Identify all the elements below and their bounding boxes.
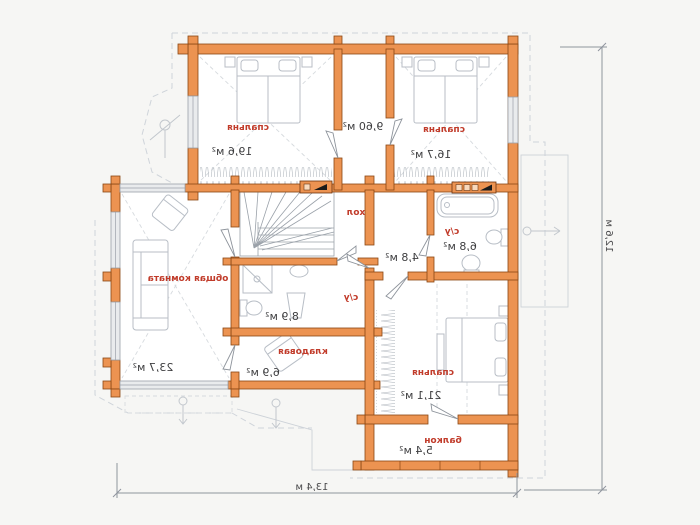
vent-panel-icon xyxy=(452,182,496,193)
room-label-hall: хол xyxy=(347,208,366,218)
drain-symbol-icon xyxy=(523,227,531,235)
room-area-corridor: 9,60 м² xyxy=(343,120,384,133)
room-area-storage: 6,9 м² xyxy=(246,366,280,379)
drain-symbol-icon xyxy=(179,397,187,405)
room-area-balcony: 5,4 м² xyxy=(399,444,433,457)
room-label-bedroom1: спальня xyxy=(227,123,269,133)
room-label-bath1: с/у xyxy=(445,227,460,237)
bed-double xyxy=(402,57,489,123)
washbasin xyxy=(290,265,308,277)
room-area-bedroom1: 19,6 м² xyxy=(212,145,253,158)
room-area-bedroom2: 16,7 м² xyxy=(411,148,452,161)
window xyxy=(120,184,185,192)
window xyxy=(111,212,120,268)
bathtub xyxy=(437,194,498,217)
dimension-right: 12,6 м xyxy=(603,220,614,253)
room-label-bedroom2: спальня xyxy=(423,125,465,135)
vent-panel-icon xyxy=(300,181,332,193)
room-label-bedroom3: спальня xyxy=(412,368,454,378)
drain-symbol-icon xyxy=(272,399,280,407)
window xyxy=(188,96,198,148)
floor-plan-canvas: спальня 19,6 м² 9,60 м² спальня 16,7 м² … xyxy=(0,0,700,525)
dimension-bottom: 13,4 м xyxy=(296,482,329,493)
bed-double xyxy=(437,306,509,395)
room-area-bath1: 6,8 м² xyxy=(443,240,477,253)
toilet xyxy=(240,300,262,316)
room-label-storage: кладовая xyxy=(278,347,328,357)
room-label-bath2: с/у xyxy=(344,293,359,303)
window xyxy=(111,302,120,360)
room-area-vestibule: 4,8 м² xyxy=(385,251,419,264)
window xyxy=(120,381,228,389)
window xyxy=(508,97,518,143)
floor-plan-drawing: спальня 19,6 м² 9,60 м² спальня 16,7 м² … xyxy=(0,0,700,525)
room-area-bedroom3: 21,1 м² xyxy=(401,389,442,402)
sofa xyxy=(133,240,168,330)
shower xyxy=(243,265,272,293)
room-area-bath2: 8,9 м² xyxy=(265,310,299,323)
room-area-living: 23,7 м² xyxy=(133,361,174,374)
room-label-living: общая комната xyxy=(148,273,229,284)
bed-double xyxy=(225,57,312,123)
